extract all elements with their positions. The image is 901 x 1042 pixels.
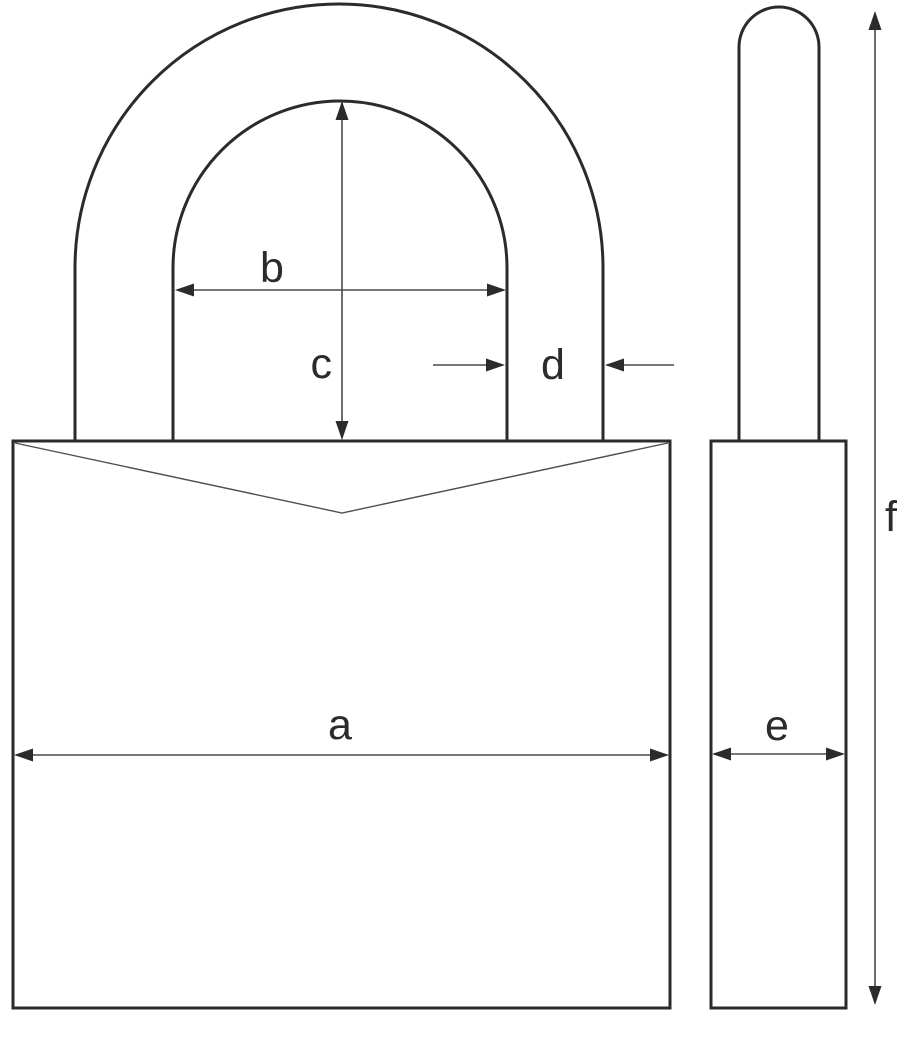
dimension-b-arrowhead-right — [487, 284, 506, 297]
dimension-f-arrowhead-top — [869, 11, 882, 30]
dimension-c: c — [311, 101, 349, 440]
dimension-f: f — [869, 11, 899, 1005]
dimension-e-label: e — [765, 702, 789, 750]
dimension-d-arrowhead-right — [605, 359, 624, 372]
dimension-c-arrowhead-bottom — [336, 421, 349, 440]
dimension-b-arrowhead-left — [175, 284, 194, 297]
dimension-b-label: b — [260, 244, 284, 292]
diagram-svg: b c d a e — [0, 0, 901, 1042]
front-shackle-inner-outline — [173, 101, 507, 442]
side-shackle-bar — [739, 7, 819, 443]
dimension-d-label: d — [541, 341, 565, 389]
dimension-c-label: c — [311, 340, 333, 388]
dimension-d: d — [433, 341, 674, 389]
padlock-dimension-diagram: b c d a e — [0, 0, 901, 1042]
dimension-d-arrowhead-left — [486, 359, 505, 372]
dimension-f-label: f — [885, 493, 898, 541]
padlock-side-view — [711, 7, 846, 1008]
front-shackle-outer-outline — [75, 4, 603, 442]
dimension-f-arrowhead-bottom — [869, 986, 882, 1005]
dimension-a-label: a — [328, 701, 352, 749]
dimension-b: b — [175, 244, 506, 297]
dimension-c-arrowhead-top — [336, 101, 349, 120]
